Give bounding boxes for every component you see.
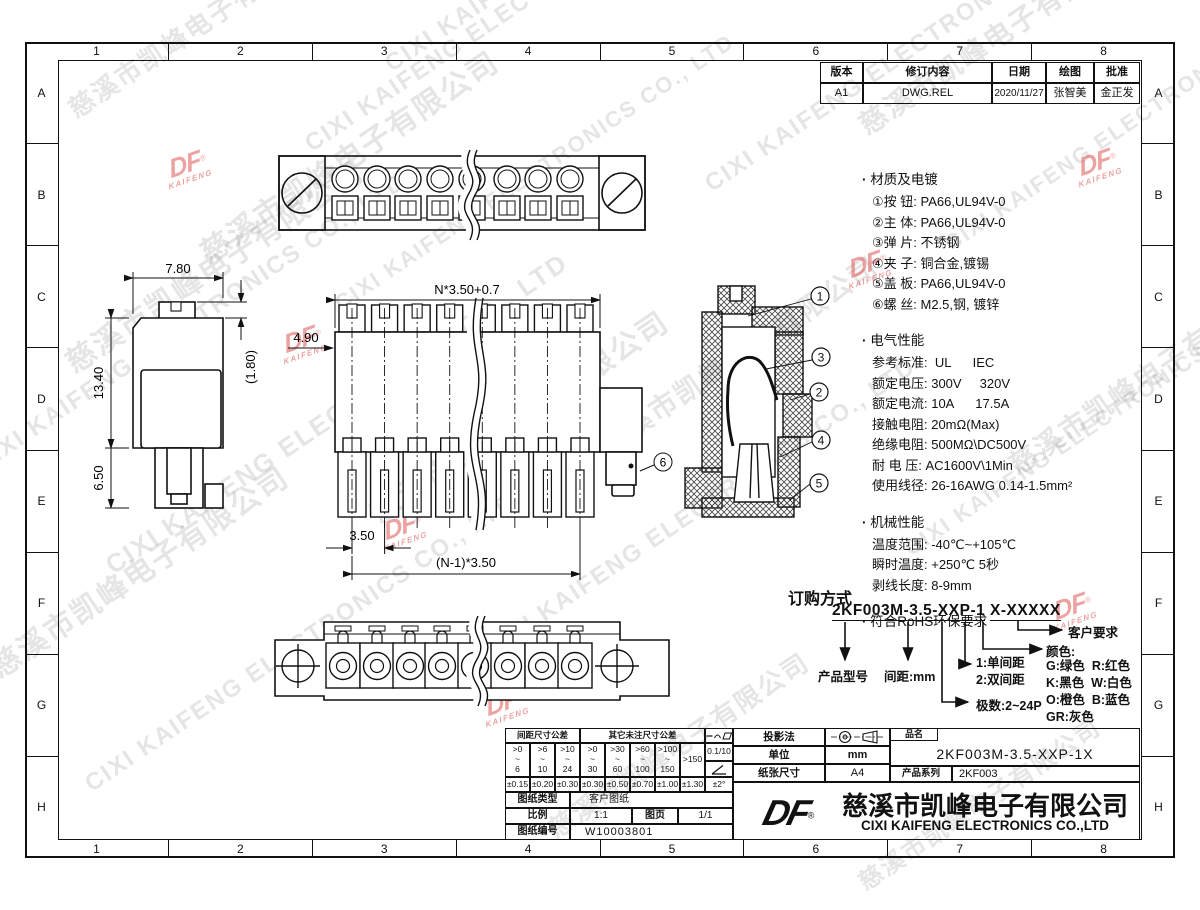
straightness-arc-parallelogram-icons (706, 731, 732, 741)
tol-range-cell: >6 ~ 10 (530, 743, 555, 777)
rev-content: DWG.REL (863, 83, 992, 104)
mechanical-item: 剥线长度: 8-9mm (872, 576, 1162, 597)
paper-size-label: 纸张尺寸 (733, 764, 825, 782)
projection-label: 投影法 (733, 728, 825, 746)
material-item: ①按 钮: PA66,UL94V-0 (872, 192, 1162, 213)
callout-5: 5 (816, 477, 823, 491)
material-section: 材质及电镀 ①按 钮: PA66,UL94V-0②主 体: PA66,UL94V… (862, 168, 1162, 315)
ordering-spacing-options: 1:单间距2:双间距 (976, 655, 1025, 689)
grid-ref-left: ABCDEFGH (25, 42, 58, 858)
dim-front-pitch: 3.50 (349, 528, 374, 543)
top-assembled-view (277, 148, 647, 243)
tol-symbols (705, 728, 733, 743)
rev-drawn: 张智美 (1046, 83, 1094, 104)
electrical-item: 额定电流: 10A 17.5A (872, 394, 1162, 415)
tol-value-cell: ±0.20 (530, 777, 555, 792)
material-item: ④夹 子: 铜合金,镀锡 (872, 254, 1162, 275)
electrical-item: 绝缘电阻: 500MΩ\DC500V (872, 435, 1162, 456)
grid-ref-label: E (25, 451, 58, 553)
grid-ref-label: 4 (457, 840, 601, 858)
grid-ref-label: 4 (457, 42, 601, 60)
section-view: 1 3 2 4 5 (640, 272, 855, 542)
callout-1: 1 (817, 290, 824, 304)
rev-version: A1 (820, 83, 863, 104)
dim-side-pin: 6.50 (91, 465, 106, 490)
rev-approved: 金正发 (1094, 83, 1140, 104)
ordering-color-options: G:绿色 R:红色K:黑色 W:白色O:橙色 B:蓝色GR:灰色 (1046, 658, 1132, 726)
rev-header-version: 版本 (820, 62, 863, 83)
tol-value-cell: ±0.70 (630, 777, 655, 792)
tol-range-cell: >10 ~ 24 (555, 743, 580, 777)
product-name-value: 2KF003M-3.5-XXP-1X (890, 741, 1140, 766)
electrical-item: 使用线径: 26-16AWG 0.14-1.5mm² (872, 476, 1162, 497)
specs-panel: 材质及电镀 ①按 钮: PA66,UL94V-0②主 体: PA66,UL94V… (862, 168, 1162, 634)
mechanical-section: 机械性能 温度范围: -40℃~+105℃瞬时温度: +250℃ 5秒剥线长度:… (862, 511, 1162, 597)
material-item: ③弹 片: 不锈钢 (872, 233, 1162, 254)
product-series-value: 2KF003 (952, 766, 1140, 782)
dim-front-span: (N-1)*3.50 (436, 555, 496, 570)
grid-ref-bottom: 12345678 (25, 840, 1175, 858)
grid-ref-label: 2 (169, 840, 313, 858)
grid-ref-label: A (1142, 42, 1175, 144)
tol-range-cell: >150 (680, 743, 705, 777)
grid-ref-label: H (1142, 757, 1175, 858)
grid-ref-label: 3 (313, 42, 457, 60)
grid-ref-label: D (25, 348, 58, 450)
callout-4: 4 (818, 434, 825, 448)
tol-pitch-header: 间距尺寸公差 (505, 728, 580, 743)
angle-icon (711, 764, 727, 775)
product-series-label: 产品系列 (890, 766, 952, 782)
tol-range-cell: >0 ~ 30 (580, 743, 605, 777)
front-view: N*3.50+0.7 4.90 3.50 (N-1)*3.50 6 (280, 268, 675, 588)
product-name-label: 品名 (890, 728, 938, 741)
rev-date: 2020/11/27 (992, 83, 1046, 104)
company-logo: DF® (743, 792, 835, 834)
grid-ref-label: B (25, 144, 58, 246)
electrical-item: 参考标准: UL IEC (872, 353, 1162, 374)
mechanical-item: 温度范围: -40℃~+105℃ (872, 535, 1162, 556)
callout-3: 3 (818, 351, 825, 365)
tol-range-cell: >0 ~ 6 (505, 743, 530, 777)
projection-symbol-cell (825, 728, 890, 746)
tol-value-cell: ±0.30 (555, 777, 580, 792)
color-option: G:绿色 R:红色 (1046, 658, 1132, 675)
grid-ref-label: 2 (169, 42, 313, 60)
dim-front-total: N*3.50+0.7 (434, 282, 499, 297)
dim-front-top: 4.90 (293, 330, 318, 345)
grid-ref-label: 5 (601, 840, 745, 858)
rev-header-date: 日期 (992, 62, 1046, 83)
tol-flatness: 0.1/10 (705, 743, 733, 761)
grid-ref-top: 12345678 (25, 42, 1175, 60)
material-item: ⑥螺 丝: M2.5,钢, 镀锌 (872, 295, 1162, 316)
scale-label: 比例 (505, 808, 570, 824)
tol-value-cell: ±1.00 (655, 777, 680, 792)
rev-header-approved: 批准 (1094, 62, 1140, 83)
tol-value-cell: ±0.15 (505, 777, 530, 792)
rev-header-content: 修订内容 (863, 62, 992, 83)
tol-value-cell: ±0.30 (580, 777, 605, 792)
electrical-item: 耐 电 压: AC1600V\1Min (872, 456, 1162, 477)
scale-value: 1:1 (570, 808, 632, 824)
electrical-list: 参考标准: UL IEC额定电压: 300V 320V额定电流: 10A 17.… (862, 353, 1162, 497)
electrical-item: 接触电阻: 20mΩ(Max) (872, 415, 1162, 436)
rev-header-drawn: 绘图 (1046, 62, 1094, 83)
dim-side-width: 7.80 (165, 262, 190, 276)
engineering-drawing-page: 慈溪市凯峰电子有限公司CIXI KAIFENG ELECTRONICS CO.,… (0, 0, 1200, 910)
spacing-option: 2:双间距 (976, 672, 1025, 689)
dim-side-height: 13.40 (91, 367, 106, 400)
callout-2: 2 (816, 386, 823, 400)
color-option: GR:灰色 (1046, 709, 1132, 726)
dim-side-tab: (1.80) (243, 350, 258, 384)
company-name-en: CIXI KAIFENG ELECTRONICS CO.,LTD (835, 818, 1135, 833)
color-option: O:橙色 B:蓝色 (1046, 692, 1132, 709)
ordering-poles-label: 极数:2~24P (976, 695, 1042, 714)
docno-label: 图纸编号 (505, 824, 570, 840)
mechanical-list: 温度范围: -40℃~+105℃瞬时温度: +250℃ 5秒剥线长度: 8-9m… (862, 535, 1162, 597)
sheet-value: 1/1 (678, 808, 733, 824)
bottom-flange-view (272, 608, 672, 713)
color-option: K:黑色 W:白色 (1046, 675, 1132, 692)
ordering-product-label: 产品型号 (818, 666, 868, 685)
mechanical-title: 机械性能 (862, 511, 1162, 531)
revision-table: 版本 修订内容 日期 绘图 批准 A1 DWG.REL 2020/11/27 张… (820, 62, 1140, 104)
material-title: 材质及电镀 (862, 168, 1162, 188)
mechanical-item: 瞬时温度: +250℃ 5秒 (872, 555, 1162, 576)
electrical-title: 电气性能 (862, 329, 1162, 349)
unit-value: mm (825, 746, 890, 764)
tol-value-cell: ±1.30 (680, 777, 705, 792)
grid-ref-label: 7 (888, 840, 1032, 858)
docno-value: W10003801 (570, 824, 733, 840)
spacing-option: 1:单间距 (976, 655, 1025, 672)
tol-range-cell: >30 ~ 60 (605, 743, 630, 777)
grid-ref-label: G (25, 655, 58, 757)
grid-ref-label: H (25, 757, 58, 858)
sheet-label: 图页 (632, 808, 678, 824)
material-item: ⑤盖 板: PA66,UL94V-0 (872, 274, 1162, 295)
grid-ref-label: F (25, 553, 58, 655)
paper-size-value: A4 (825, 764, 890, 782)
electrical-item: 额定电压: 300V 320V (872, 374, 1162, 395)
tol-value-cell: ±0.50 (605, 777, 630, 792)
drawing-type-value: 客户图纸 (570, 792, 733, 808)
registered-mark: ® (808, 811, 815, 821)
grid-ref-label: 3 (313, 840, 457, 858)
tol-angle: ±2° (705, 777, 733, 792)
side-view: 7.80 13.40 6.50 (1.80) (75, 262, 275, 552)
grid-ref-label: 6 (744, 42, 888, 60)
company-logo-text: DF (758, 792, 812, 834)
drawing-type-label: 图纸类型 (505, 792, 570, 808)
tol-angle-symbol (705, 761, 733, 777)
first-angle-projection-icon (829, 730, 887, 744)
unit-label: 单位 (733, 746, 825, 764)
material-item: ②主 体: PA66,UL94V-0 (872, 213, 1162, 234)
tol-other-header: 其它未注尺寸公差 (580, 728, 705, 743)
grid-ref-label: 5 (601, 42, 745, 60)
tol-range-cell: >100 ~ 150 (655, 743, 680, 777)
ordering-pitch-label: 间距:mm (884, 666, 935, 685)
title-block: 间距尺寸公差 其它未注尺寸公差 >0 ~ 6>6 ~ 10>10 ~ 24>0 … (505, 728, 1140, 840)
grid-ref-label: C (25, 246, 58, 348)
material-list: ①按 钮: PA66,UL94V-0②主 体: PA66,UL94V-0③弹 片… (862, 192, 1162, 315)
tol-range-cell: >60 ~ 100 (630, 743, 655, 777)
ordering-customer-label: 客户要求 (1068, 622, 1118, 641)
grid-ref-label: 6 (744, 840, 888, 858)
electrical-section: 电气性能 参考标准: UL IEC额定电压: 300V 320V额定电流: 10… (862, 329, 1162, 497)
grid-ref-label: A (25, 42, 58, 144)
grid-ref-label: 7 (888, 42, 1032, 60)
